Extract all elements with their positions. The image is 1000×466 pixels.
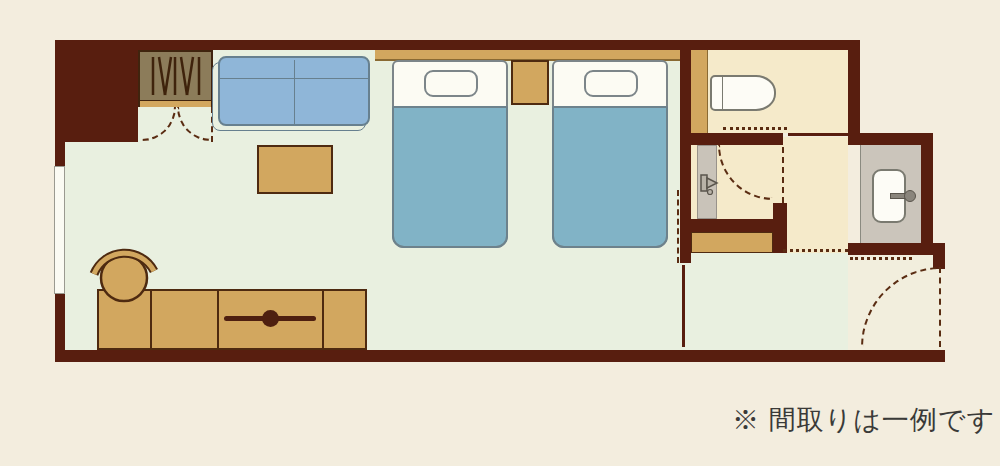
entrance-door-leaf-line xyxy=(939,267,941,347)
sofa-cushion-divider xyxy=(294,60,295,124)
wall-bedroom-wet-divider xyxy=(680,50,691,263)
wall-washbasin-bottom xyxy=(848,243,945,255)
bed-2-pillow-icon xyxy=(584,70,638,97)
wall-shower-top xyxy=(691,133,783,145)
low-table-icon xyxy=(257,145,333,194)
counter-divider xyxy=(217,291,219,348)
shower-corridor-dashed-line xyxy=(782,147,784,203)
wall-top xyxy=(55,40,860,50)
closet-hangers-icon xyxy=(141,53,210,99)
shower-faucet-icon xyxy=(698,168,720,198)
wall-washbasin-top xyxy=(848,133,933,145)
washbasin-faucet-knob xyxy=(904,190,916,202)
wall-bottom xyxy=(55,350,945,362)
window-icon xyxy=(54,166,65,294)
bed-1-blanket xyxy=(392,106,508,248)
room-main-bedroom-foyer xyxy=(680,253,848,350)
sofa-icon xyxy=(218,56,370,126)
wall-block-top-left xyxy=(55,40,138,142)
entrance-threshold xyxy=(850,257,912,260)
floorplan-note: ※ 間取りは一例です xyxy=(732,402,972,438)
closet-icon xyxy=(138,50,213,107)
bed-1-pillow-icon xyxy=(424,70,478,97)
floor-plan-canvas: ※ 間取りは一例です xyxy=(0,0,1000,466)
wall-shower-stub xyxy=(773,203,787,253)
toilet-door-threshold xyxy=(723,127,787,130)
wall-entrance-right-stub xyxy=(933,243,945,269)
toilet-room-shelf xyxy=(691,50,708,133)
closet-rail xyxy=(140,100,211,107)
bedroom-wall-dashed-line xyxy=(677,190,679,263)
tv-stand-dot xyxy=(262,310,279,327)
bed-2-blanket xyxy=(552,106,668,248)
counter-divider xyxy=(322,291,324,348)
toilet-bowl-icon xyxy=(710,75,776,111)
wall-toilet-right xyxy=(848,50,860,133)
toilet-tank-line xyxy=(722,77,723,109)
nightstand-icon xyxy=(511,60,549,105)
stool-icon xyxy=(88,242,160,304)
wall-toilet-thin-line xyxy=(788,133,848,136)
room-corridor xyxy=(783,137,848,253)
luggage-bench-icon xyxy=(691,232,773,253)
wall-foyer-thin-line xyxy=(682,265,685,347)
corridor-threshold xyxy=(783,249,848,252)
wall-washbasin-right xyxy=(921,145,933,243)
